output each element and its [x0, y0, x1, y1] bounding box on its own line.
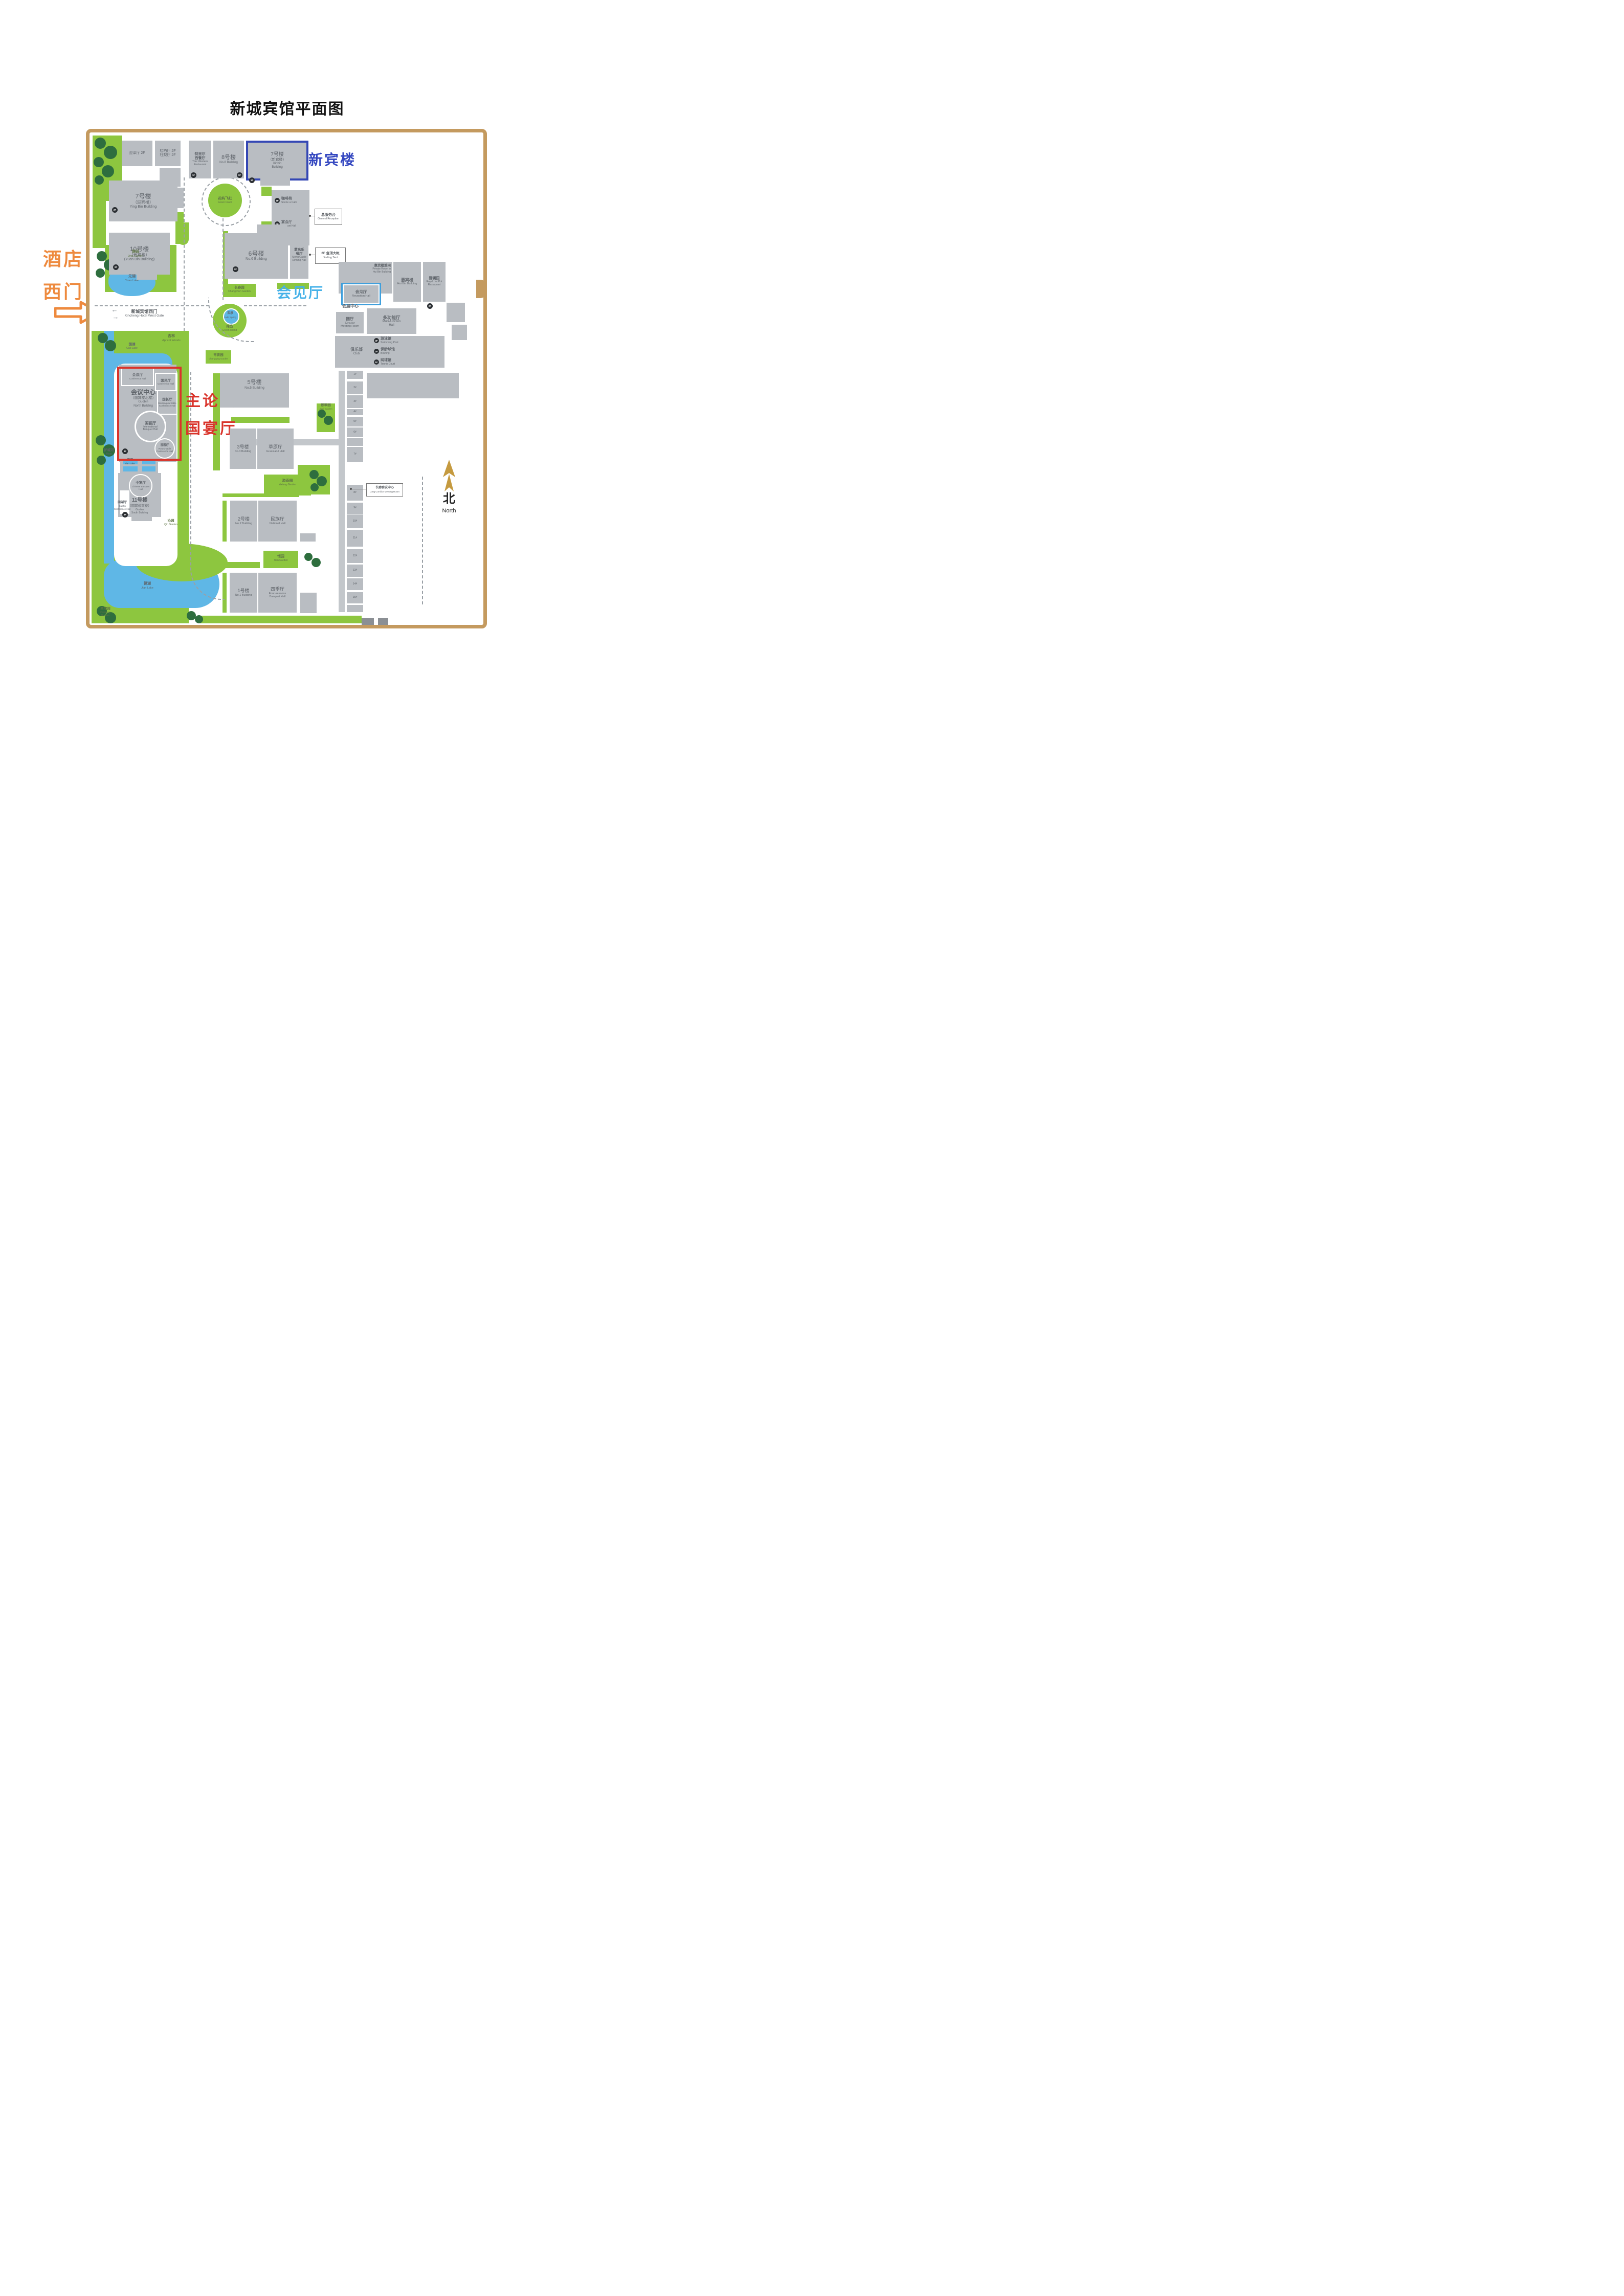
- villa-13: 13#: [347, 565, 363, 577]
- callout-dot: [350, 488, 352, 490]
- guohu-hall-label: 国湖厅 Guohu Conference Hall: [110, 499, 135, 513]
- garden-strip: [223, 493, 299, 497]
- west-gate-big-label-line2: 西门: [43, 277, 84, 304]
- callout-dot: [309, 215, 311, 217]
- road-dashed-east: [422, 477, 423, 604]
- garden-strip-left: [93, 201, 106, 248]
- south-gate-stub: [362, 618, 374, 625]
- villa-3: 3#: [347, 395, 363, 408]
- callout-dot: [309, 254, 311, 256]
- bowling-row: 2F 保龄球馆 Bowling: [374, 348, 395, 355]
- main-forum-highlight-box: [117, 367, 182, 461]
- yuan-lake-label: 元湖 Yuan Lake: [114, 274, 150, 284]
- reception-desk-callout: 总服务台 General Reception: [315, 209, 342, 225]
- building-no2: 2号楼 No.2 Building: [230, 501, 257, 542]
- tree-icon: [105, 340, 116, 351]
- changchun-garden-label: 长春园 Changchun Garden: [221, 284, 257, 295]
- villa-5: 5#: [347, 417, 363, 426]
- tree-icon: [102, 165, 114, 177]
- building-annex: [260, 178, 290, 186]
- west-gate-label: 新城宾馆西门 Xincheng Hotel West Gate: [122, 306, 166, 321]
- west-gate-big-label-line1: 酒店: [43, 244, 84, 271]
- garden-strip: [231, 417, 290, 423]
- qin-garden-label: 沁园 Qin Garden: [159, 517, 183, 528]
- garden-band-bottom: [198, 616, 362, 623]
- tree-icon: [96, 435, 106, 445]
- building-annex: [131, 517, 152, 521]
- building-royal-hotpot: 御澜园 Royal Hot Pot Restaurant: [423, 262, 446, 302]
- gate-arrow-right-icon: →: [108, 313, 123, 321]
- building-annex: [300, 533, 316, 542]
- xinbin-annotation: 新宾楼: [308, 149, 356, 169]
- building-zhongyan-hall: 中宴厅 Chinese Banquet Hall: [129, 474, 152, 498]
- villa-14: 14#: [347, 578, 363, 590]
- callout-line: [310, 255, 315, 255]
- north-label-zh: 北: [439, 491, 459, 507]
- page: 新城宾馆平面图 酒店 西门: [0, 0, 574, 812]
- building-annex: [452, 325, 467, 340]
- tian-lake-pool: [142, 466, 155, 471]
- villa-12: 12#: [347, 549, 363, 563]
- villa-10: 10#: [347, 514, 363, 528]
- corridor-meeting-callout: 长廊会议中心 Long Corridor Meeting Room: [366, 483, 403, 497]
- floor-badge: 1F: [374, 359, 379, 365]
- tree-icon: [310, 483, 319, 491]
- building-circular-room: 圆厅 Circular Meeting Room: [335, 311, 365, 334]
- jing-garden-label: 静园 Jing Garden: [120, 249, 151, 259]
- guo-lake-label: 国湖 Guo Lake: [121, 341, 143, 351]
- building-guibai-duli-hall: 桧柏厅 2F 杜梨厅 2F: [155, 141, 181, 166]
- building-yingze-hall: 迎泽厅 2F: [122, 141, 152, 166]
- tree-icon: [312, 558, 321, 567]
- tree-icon: [317, 476, 327, 486]
- villa-7: 7#: [347, 447, 363, 462]
- building-no7-yingbin: 7号楼 （迎宾楼） Ying Bin Building: [109, 181, 177, 221]
- building-annex: [447, 303, 465, 322]
- tian-garden-label: 恬园 Tian Garden: [265, 553, 296, 564]
- floor-badge: 1F: [191, 172, 196, 178]
- north-arrow-icon: [439, 460, 459, 492]
- building-grassland-hall: 草原厅 Grassland Hall: [257, 429, 294, 469]
- floor-badge: 1F: [249, 177, 255, 183]
- building-fourseasons-hall: 四季厅 Four-seasons Banquet Hall: [258, 573, 297, 613]
- building-annex: [300, 593, 317, 613]
- tree-icon: [94, 157, 104, 167]
- villa-annex: [347, 605, 363, 612]
- tennis-row: 1F 网球馆 Tennis Court: [374, 358, 395, 366]
- garden-blob: [177, 222, 189, 245]
- road-dashed: [184, 177, 185, 331]
- building-huibin: 惠宾楼 Hui Bin Building: [393, 262, 421, 302]
- villa-15: 15#: [347, 592, 363, 603]
- cafe-row: 1F 咖啡苑 Scene a Cafe: [275, 197, 297, 204]
- tree-icon: [96, 268, 105, 278]
- road-gray-vertical: [339, 371, 345, 612]
- villa-1: 1#: [347, 371, 363, 379]
- jicui-garden-label: 积翠园 Jicui Garden: [314, 402, 338, 412]
- garden-strip: [223, 562, 260, 568]
- floor-badge: 3F: [374, 338, 379, 343]
- tree-icon: [95, 175, 104, 185]
- east-gate-notch: [476, 280, 486, 298]
- building-multifunction-hall: 多功能厅 Multi-function Hall: [367, 308, 416, 334]
- green-island-label: 绿岛 Green Island: [213, 324, 247, 333]
- building-reception-hall: 会见厅 Reception Hall: [341, 283, 381, 305]
- building-annex: [257, 224, 287, 233]
- exhibition-center-label: 会展中心: [338, 303, 363, 310]
- building-no1: 1号楼 No.1 Building: [230, 573, 257, 613]
- callout-line: [310, 216, 315, 216]
- floor-badge: 3F: [122, 512, 128, 517]
- south-gate-stub: [378, 618, 388, 625]
- huayu-label: 花屿飞红 Green Island: [208, 194, 242, 207]
- reception-hall-annotation: 会见厅: [277, 282, 324, 302]
- swimming-row: 3F 游泳馆 Swimming Pool: [374, 337, 398, 344]
- page-title: 新城宾馆平面图: [0, 96, 574, 119]
- villa-9: 9#: [347, 503, 363, 514]
- floor-badge: 1F: [275, 198, 280, 203]
- garden-strip: [223, 501, 227, 542]
- villa-4: 4#: [347, 409, 363, 415]
- floor-badge: 2F: [233, 266, 238, 272]
- villa-8: 8#: [347, 485, 363, 501]
- site-map: 迎泽厅 2F 桧柏厅 2F 杜梨厅 2F 特里尔 西餐厅 Trier Weste…: [86, 129, 487, 628]
- building-east-block: [367, 373, 459, 398]
- changqing-garden-label: 常青园 Changqing Garden: [206, 351, 231, 363]
- building-no3: 3号楼 No.3 Building: [230, 429, 256, 469]
- tree-icon: [104, 146, 117, 159]
- club-label: 俱乐部 Club: [345, 344, 368, 359]
- floor-badge: 2F: [113, 264, 119, 270]
- floor-badge: 2F: [427, 303, 433, 309]
- building-national-hall: 民族厅 National Hall: [258, 501, 297, 542]
- building-annex: [177, 188, 184, 208]
- floor-badge: 9F: [237, 172, 242, 178]
- jian-lake-label: 健湖 Jian Lake: [134, 580, 161, 592]
- apricot-woods-label: 杏林 Apricot Woods: [156, 333, 187, 344]
- floor-badge: 2F: [374, 349, 379, 354]
- floor-badge: 2F: [112, 207, 118, 213]
- cuiqiong-garden-label: 翠穹园 Cuiqiong Garden: [92, 604, 119, 620]
- tree-icon: [95, 138, 106, 149]
- yixiang-garden-label: 溢香园 Yixiang Garden: [270, 477, 305, 488]
- callout-line: [351, 489, 366, 489]
- garden-bit: [261, 187, 272, 196]
- villa-6: 6#: [347, 427, 363, 437]
- jade-spring-label: 玉泉 Jade Spring: [220, 310, 240, 321]
- villa-11: 11#: [347, 530, 363, 547]
- villa-2: 2#: [347, 381, 363, 394]
- north-label-en: North: [437, 508, 461, 515]
- building-menggaole: 蒙高乐 餐厅 Meng Gaole Dinning Hall: [290, 232, 308, 279]
- tree-icon: [195, 615, 203, 623]
- tree-icon: [304, 553, 313, 561]
- tree-icon: [97, 251, 107, 261]
- tian-lake-pool: [123, 466, 138, 471]
- building-no5: 5号楼 No.5 Building: [220, 373, 289, 408]
- villa-annex: [347, 438, 363, 446]
- tree-icon: [324, 416, 333, 425]
- building-no7-xinbin: 7号楼 （新宾楼） Xinbin Building: [246, 141, 308, 181]
